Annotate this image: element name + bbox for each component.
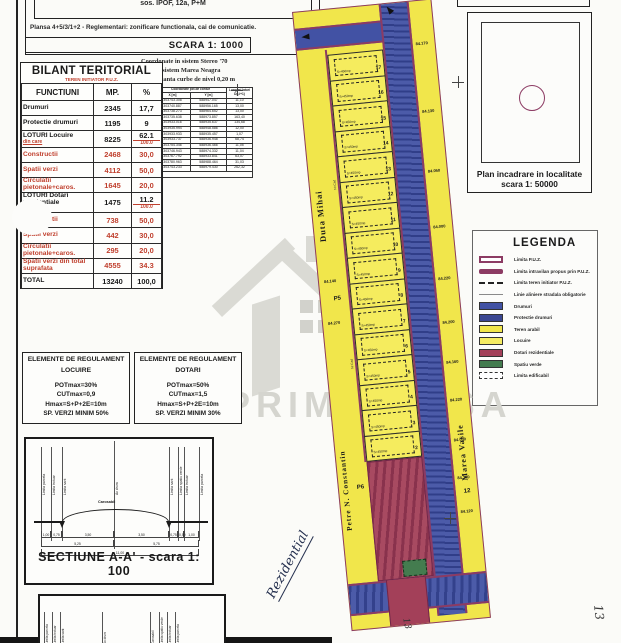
legend-item: Limita teren initiator P.U.Z.	[479, 277, 597, 289]
bilant-row: Spatii verzi411250,0	[22, 163, 162, 178]
section-axis-label: Limita parcela	[43, 474, 46, 495]
cut-off-box	[457, 0, 590, 7]
ground-line	[169, 521, 208, 523]
lot-number: 9	[398, 267, 401, 273]
bilant-row: Circulatii pietonale+caros.164520,0	[22, 178, 162, 193]
bilant-row-label: Spatii verzi din total suprafata	[23, 259, 92, 273]
legend: LEGENDA Limita P.U.Z.Limita intravilan p…	[472, 230, 598, 406]
legend-label: Locuire	[514, 338, 531, 343]
bilant-row: LOTURI Locuiredin care822562.1100.0	[22, 131, 162, 148]
yellow-swatch	[479, 325, 503, 333]
elevation-label: 84.270	[328, 320, 341, 326]
elevation-label: 84.170	[415, 40, 428, 46]
incadrare-map-frame	[481, 22, 580, 163]
num: 9	[132, 116, 162, 131]
bilant-row-label: TOTAL	[23, 278, 92, 285]
section-axis-label: Limita parcela	[177, 624, 180, 643]
elevation-label: 84.140	[324, 278, 337, 284]
scale-label: SCARA 1: 1000	[169, 40, 244, 51]
page-frame-line	[16, 0, 18, 643]
td: Spatii verzi	[22, 163, 94, 178]
cv	[237, 84, 238, 96]
plan-incadrare-box: Plan incadrare in localitate scara 1: 50…	[467, 12, 592, 193]
num: 30,0	[132, 228, 162, 243]
bilant-subtitle: TEREN INITIATOR P.U.Z.	[21, 77, 162, 82]
road-direction-arrow	[301, 33, 310, 40]
bilant-row-pct: 62.1	[133, 131, 160, 140]
handwritten-number: 13	[400, 617, 412, 630]
cv	[458, 76, 459, 88]
survey-cross	[452, 76, 464, 88]
section-axis-label: Limita trotuar	[169, 625, 172, 643]
legend-label: Protectie drumuri	[514, 315, 552, 320]
num: 100,0	[132, 274, 162, 289]
green-swatch	[479, 360, 503, 368]
bilant-title: BILANT TERITORIAL	[21, 65, 162, 77]
td: Circulatii pietonale+caros.	[22, 243, 94, 258]
reg-line: SP. VERZI MINIM 30%	[135, 409, 241, 418]
section-aa-caption: SECTIUNE A-A' - scara 1: 100	[26, 550, 212, 578]
reg-line: CUTmax=1,5	[135, 390, 241, 399]
bilant-row-label: Circulatii pietonale+caros.	[23, 244, 92, 258]
section-axis-label: Limita parcela	[201, 474, 204, 495]
bilant-row-label: Protectie drumuri	[23, 120, 92, 127]
bilant-row-pct: 34.3	[133, 261, 160, 270]
legend-item: Limita intravilan propus prin P.U.Z.	[479, 266, 597, 278]
bilant-col-functiuni: FUNCTIUNI	[22, 84, 94, 101]
bilant-row-pct: 50,0	[133, 216, 160, 225]
bilant-row-label: Circulatii pietonale+caros.	[23, 178, 92, 192]
legend-item: Spatiu verde	[479, 358, 597, 370]
legend-title: LEGENDA	[513, 237, 597, 249]
handwritten-number: 13	[591, 604, 607, 621]
bilant-row-pct: 30,0	[133, 150, 160, 159]
bilant-header-row: FUNCTIUNI MP. %	[22, 84, 162, 101]
section-axis-label: Limita parcela	[46, 624, 49, 643]
elevation-label: 84.120	[460, 508, 473, 514]
lot-number: 16	[378, 90, 384, 97]
site-location-circle	[519, 85, 545, 111]
survey-cross	[231, 84, 243, 96]
bilant-row: Protectie drumuri11959	[22, 116, 162, 131]
td: Protectie drumuri	[22, 116, 94, 131]
puz-outline-swatch	[479, 256, 503, 263]
purple-bar-swatch	[479, 269, 503, 275]
legend-label: Linie aliniere stradala obligatorie	[514, 292, 586, 297]
elevation-label: 84.200	[442, 319, 455, 325]
lot-number: 11	[390, 217, 396, 223]
section-axis-label: Limita spatiu verde	[161, 617, 164, 643]
watermark-window-pane	[300, 300, 313, 313]
section-aa-box: Limita parcelaLimita trotuarLimita santA…	[24, 437, 214, 585]
section-axis-label: Limita spatiu verde	[180, 467, 183, 495]
legend-label: Spatiu verde	[514, 362, 542, 367]
num: 738	[94, 213, 132, 228]
legend-item: Locuire	[479, 335, 597, 347]
elevation-label: 84.050	[428, 168, 441, 174]
legend-item: Protectie drumuri	[479, 312, 597, 324]
bilant-row-pct: 9	[133, 119, 160, 128]
section-axis-label: Limita trotuar	[54, 625, 57, 643]
dimension-segment: 0,75	[169, 531, 178, 538]
regulament-title: ELEMENTE DE REGULAMENT	[135, 356, 241, 364]
td: TOTAL	[22, 274, 94, 289]
bilant-row-pct: 100,0	[133, 277, 160, 286]
lot-number: 13	[385, 166, 391, 173]
section-axis-label: Ax drum	[116, 482, 119, 495]
maroon-swatch	[479, 349, 503, 357]
legend-label: Limita P.U.Z.	[514, 257, 541, 262]
handwritten-note: Rezidential	[264, 529, 314, 602]
bilant-row-pct2: 100.0	[133, 140, 160, 147]
lot-number: 5	[407, 369, 410, 375]
bilant-row-label: Drumuri	[23, 105, 92, 112]
ditch-notch	[59, 521, 65, 528]
tbody: Drumuri234517,7Protectie drumuri11959LOT…	[22, 101, 162, 289]
reg-line: Hmax=S+P+2E=10m	[23, 400, 129, 409]
bilant-row: TOTAL13240100,0	[22, 274, 162, 289]
num: 50,0	[132, 163, 162, 178]
bilant-row-pct: 17,7	[133, 104, 160, 113]
bilant-row-pct: 30,0	[133, 231, 160, 240]
point-number: 12	[463, 488, 470, 495]
num: 2345	[94, 101, 132, 116]
regulament-locuire-box: ELEMENTE DE REGULAMENT LOCUIRE POTmax=30…	[22, 352, 130, 424]
section-axis-label: Limita trotuar	[186, 475, 189, 495]
lot-number: 8	[400, 293, 403, 299]
dimension-segment: 1,00	[184, 531, 199, 538]
num: 20,0	[132, 178, 162, 193]
num: 50,0	[132, 213, 162, 228]
bilant-row-label: Spatii verzi	[23, 167, 92, 174]
num: 442	[94, 228, 132, 243]
num: 1195	[94, 116, 132, 131]
regulament-title: ELEMENTE DE REGULAMENT	[23, 356, 129, 364]
legend-label: Dotari rezidentiale	[514, 350, 554, 355]
td: Drumuri	[22, 101, 94, 116]
lot-number: 6	[405, 343, 408, 349]
td: LOTURI Locuiredin care	[22, 131, 94, 148]
num: 2468	[94, 147, 132, 162]
legend-label: Limita edificabil	[514, 373, 549, 378]
bilant-row-label: Constructii	[23, 152, 92, 159]
survey-point-label: P5	[333, 296, 341, 303]
street-label-petre-constantin: Petre N. Constantin	[334, 418, 357, 563]
legend-item: Linie aliniere stradala obligatorie	[479, 289, 597, 301]
section-axis-label: Limita sant	[62, 629, 65, 643]
bilant-row-sublabel: din care	[23, 140, 92, 145]
scale-box: SCARA 1: 1000	[25, 37, 251, 53]
elevation-label: 84.160	[446, 359, 459, 365]
regulament-zone: LOCUIRE	[23, 367, 129, 375]
section-axis-label: Ax drum	[104, 632, 107, 643]
reg-line: POTmax=30%	[23, 381, 129, 390]
num: 4112	[94, 163, 132, 178]
lot-number: 12	[388, 191, 394, 198]
project-address: sos. IPOF, 12a, P+M	[35, 0, 311, 7]
num: 11.2100.0	[132, 193, 162, 213]
lot-number: 3	[412, 420, 415, 426]
num: 1475	[94, 193, 132, 213]
bilant-row-pct: 50,0	[133, 166, 160, 175]
dark-blue-swatch	[479, 314, 503, 322]
zone-spatiu-verde	[402, 559, 427, 577]
elevation-label: 84.130	[422, 108, 435, 114]
regulament-zone: DOTARI	[135, 367, 241, 375]
scan-artifact-blob	[12, 199, 52, 235]
legend-item: Limita P.U.Z.	[479, 254, 597, 266]
section-axis-label: Limita sant	[64, 479, 67, 495]
dimension-segment: 1,00	[41, 531, 51, 538]
td: Constructii	[22, 147, 94, 162]
incadrare-scale: scara 1: 50000	[468, 179, 591, 189]
td: Circulatii pietonale+caros.	[22, 178, 94, 193]
dimension-segment: 3,50	[62, 531, 114, 538]
section-2-box: Limita parcelaLimita trotuarLimita santA…	[38, 594, 226, 643]
td: Spatii verzi din total suprafata	[22, 258, 94, 273]
site-plan: S=450mp17S=450mp16S=450mp15S=450mp14S=45…	[292, 0, 491, 631]
elevation-label: 84.220	[438, 275, 451, 281]
survey-cross	[444, 512, 456, 524]
dimension-segment: 3,50	[114, 531, 169, 538]
lot-number: 17	[375, 64, 381, 71]
blue-swatch	[479, 302, 503, 310]
lot-number: 14	[383, 140, 389, 147]
lot-number: 15	[380, 115, 386, 122]
bilant-col-pct: %	[132, 84, 162, 101]
legend-label: Limita teren initiator P.U.Z.	[514, 280, 572, 285]
dashed-line-swatch	[479, 282, 503, 284]
legend-item: Drumuri	[479, 300, 597, 312]
dimension-segment: 5,25	[41, 540, 114, 547]
bilant-row-pct: 11.2	[133, 195, 160, 204]
incadrare-caption: Plan incadrare in localitate	[468, 169, 591, 179]
dimension-segment: 5,75	[114, 540, 199, 547]
num: 30,0	[132, 147, 162, 162]
lot-number: 7	[403, 318, 406, 324]
section-axis-label: Carosabil	[152, 631, 155, 643]
legend-label: Limita intravilan propus prin P.U.Z.	[514, 269, 590, 274]
regulament-dotari-box: ELEMENTE DE REGULAMENT DOTARI POTmax=50%…	[134, 352, 242, 424]
dashed-box-swatch	[479, 372, 503, 379]
num: 20,0	[132, 243, 162, 258]
road-crown-curve	[62, 509, 169, 522]
bilant-row-pct2: 100.0	[133, 204, 160, 211]
watermark-house-wall	[252, 295, 280, 396]
reg-line: CUTmax=0,9	[23, 390, 129, 399]
road-surface-label: Carosabil	[98, 500, 115, 504]
num: 1645	[94, 178, 132, 193]
num: 34.3	[132, 258, 162, 273]
lot-number: 10	[392, 242, 398, 249]
yellow2-swatch	[479, 337, 503, 345]
num: 8225	[94, 131, 132, 148]
ditch-notch	[166, 521, 172, 528]
bilant-row: Drumuri234517,7	[22, 101, 162, 116]
num: 17,7	[132, 101, 162, 116]
thead: FUNCTIUNI MP. %	[22, 84, 162, 101]
num: 295	[94, 243, 132, 258]
legend-label: Drumuri	[514, 304, 532, 309]
num: 62.1100.0	[132, 131, 162, 148]
puz-sheet: sos. IPOF, 12a, P+M Plansa 4+5/3/1+2 - R…	[0, 0, 621, 643]
gray-line-swatch	[479, 294, 503, 295]
survey-point-label: P6	[357, 484, 365, 491]
lot-number: 2	[415, 445, 418, 451]
num: 4555	[94, 258, 132, 273]
dimension-segment: 0,75	[51, 531, 62, 538]
legend-items: Limita P.U.Z.Limita intravilan propus pr…	[479, 254, 597, 382]
bilant-grid: FUNCTIUNI MP. % Drumuri234517,7Protectie…	[21, 83, 162, 289]
reg-line: SP. VERZI MINIM 50%	[23, 409, 129, 418]
bilant-row: Constructii246830,0	[22, 147, 162, 162]
section-axis-label: Limita sant	[171, 479, 174, 495]
ground-line	[34, 521, 60, 523]
title-block: sos. IPOF, 12a, P+M Plansa 4+5/3/1+2 - R…	[25, 0, 320, 55]
bilant-row-pct: 20,0	[133, 181, 160, 190]
cv	[450, 512, 451, 524]
legend-label: Teren arabil	[514, 327, 540, 332]
bilant-row: Spatii verzi din total suprafata455534.3	[22, 258, 162, 273]
section-axis-label: Limita trotuar	[53, 475, 56, 495]
legend-item: Limita edificabil	[479, 370, 597, 382]
num: 13240	[94, 274, 132, 289]
lot-number: 4	[410, 394, 413, 400]
plansa-title: Plansa 4+5/3/1+2 - Reglementari: zonific…	[30, 24, 256, 31]
bilant-row-pct: 20,0	[133, 246, 160, 255]
watermark-window-pane	[300, 320, 313, 333]
legend-item: Dotari rezidentiale	[479, 347, 597, 359]
bilant-teritorial: BILANT TERITORIAL TEREN INITIATOR P.U.Z.…	[20, 62, 163, 289]
legend-item: Teren arabil	[479, 324, 597, 336]
bilant-row: Circulatii pietonale+caros.29520,0	[22, 243, 162, 258]
elevation-label: 84.000	[433, 223, 446, 229]
bilant-col-mp: MP.	[94, 84, 132, 101]
title-block-project-box: sos. IPOF, 12a, P+M	[34, 0, 312, 19]
reg-line: POTmax=50%	[135, 381, 241, 390]
reg-line: Hmax=S+P+2E=10m	[135, 400, 241, 409]
